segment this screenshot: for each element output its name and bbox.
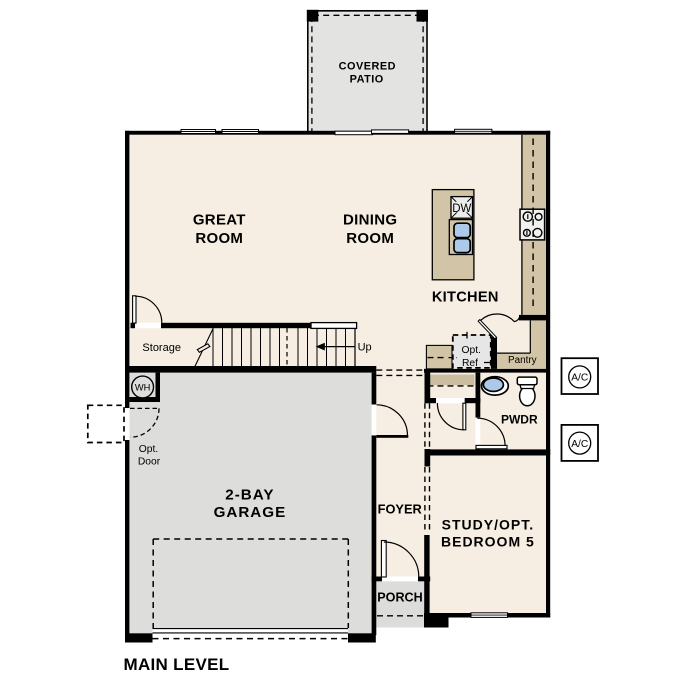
svg-text:Opt.: Opt.	[461, 345, 480, 356]
svg-text:A/C: A/C	[571, 439, 588, 450]
svg-text:PORCH: PORCH	[377, 591, 422, 605]
svg-text:ROOM: ROOM	[195, 230, 243, 247]
svg-text:STUDY/OPT.: STUDY/OPT.	[442, 517, 534, 533]
svg-text:ROOM: ROOM	[346, 230, 394, 247]
svg-text:KITCHEN: KITCHEN	[432, 289, 499, 305]
svg-text:MAIN LEVEL: MAIN LEVEL	[124, 655, 230, 674]
svg-text:GREAT: GREAT	[193, 212, 246, 229]
svg-text:Storage: Storage	[142, 342, 181, 354]
svg-text:GARAGE: GARAGE	[214, 504, 287, 521]
svg-text:A/C: A/C	[571, 373, 588, 384]
svg-text:DINING: DINING	[343, 212, 397, 229]
svg-text:COVERED: COVERED	[339, 60, 396, 72]
svg-text:DW: DW	[452, 203, 471, 215]
svg-text:Up: Up	[358, 342, 372, 354]
svg-text:PWDR: PWDR	[501, 412, 538, 426]
svg-text:2-BAY: 2-BAY	[225, 487, 274, 504]
svg-text:WH: WH	[135, 382, 151, 392]
svg-text:PATIO: PATIO	[350, 73, 384, 85]
svg-text:Pantry: Pantry	[508, 355, 537, 366]
svg-text:Door: Door	[138, 456, 161, 467]
svg-text:BEDROOM 5: BEDROOM 5	[441, 534, 535, 550]
svg-text:FOYER: FOYER	[378, 501, 422, 516]
svg-text:Ref: Ref	[462, 358, 478, 369]
svg-text:Opt.: Opt.	[139, 444, 158, 455]
